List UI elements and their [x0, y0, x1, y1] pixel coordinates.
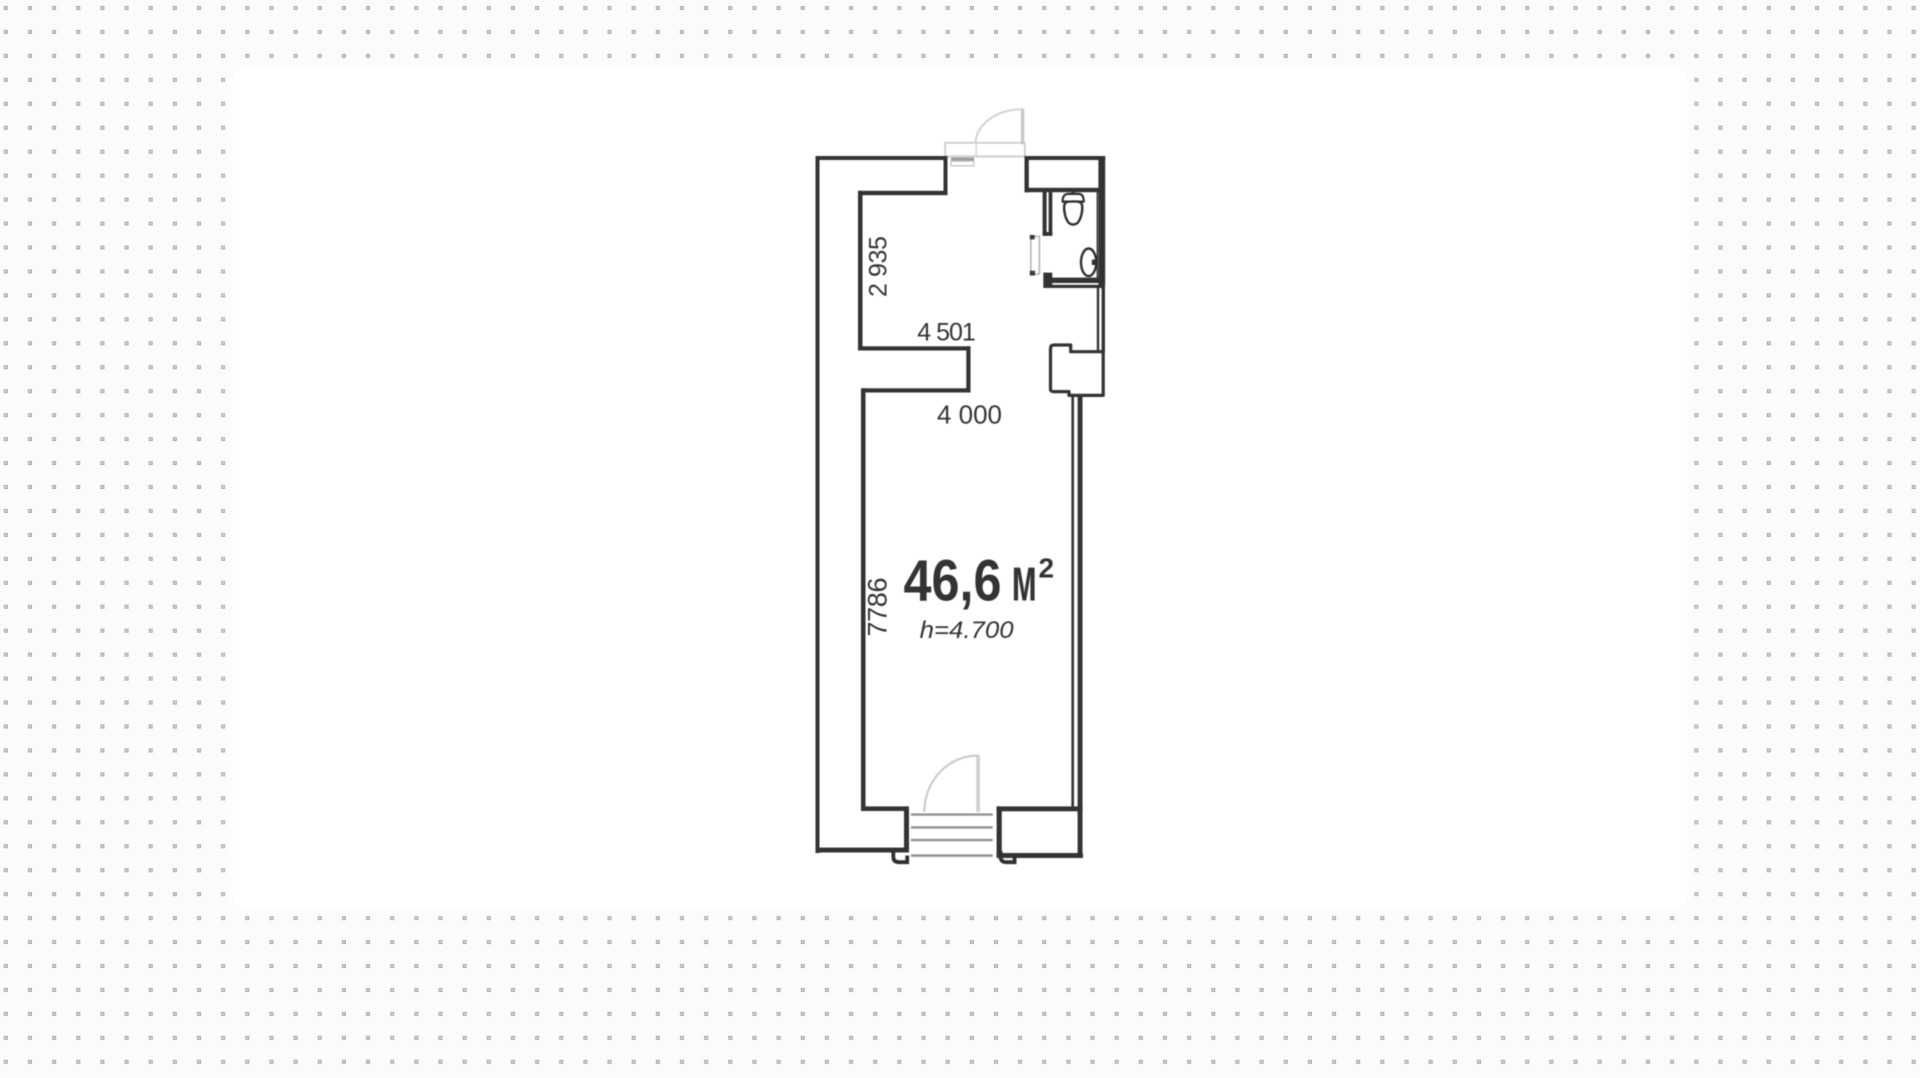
- svg-text:2: 2: [1039, 553, 1055, 584]
- svg-text:4 000: 4 000: [937, 400, 1002, 430]
- svg-text:2 935: 2 935: [865, 236, 893, 297]
- svg-text:4 501: 4 501: [917, 319, 976, 347]
- svg-text:м: м: [1012, 546, 1038, 615]
- svg-text:7786: 7786: [863, 578, 893, 637]
- svg-text:46,6: 46,6: [904, 549, 1002, 614]
- svg-text:h=4.700: h=4.700: [920, 617, 1015, 644]
